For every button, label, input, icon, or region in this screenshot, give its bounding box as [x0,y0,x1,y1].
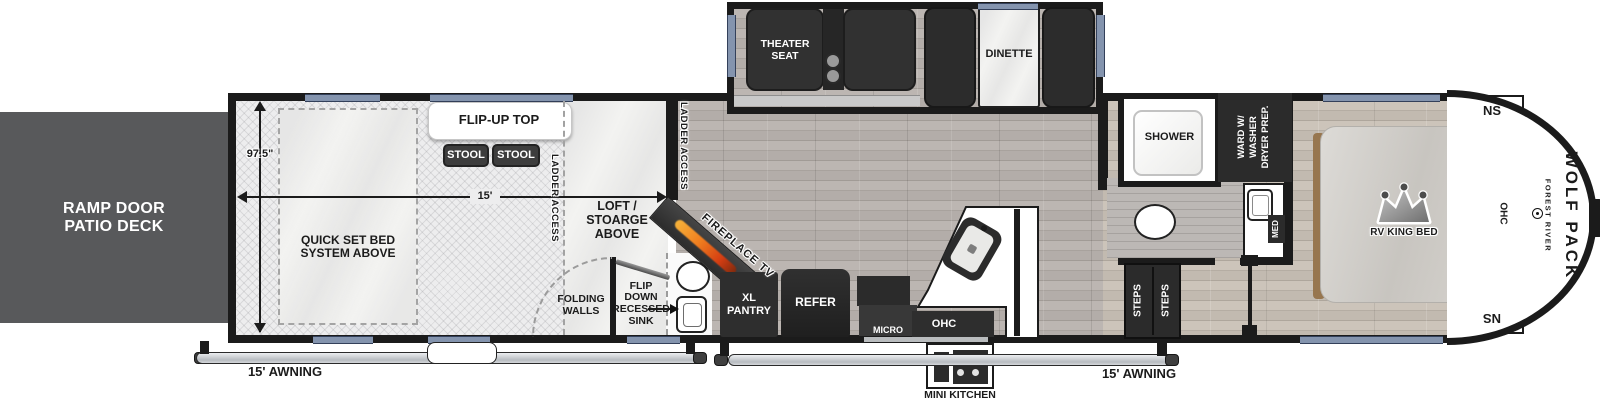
shower-label: SHOWER [1120,130,1219,145]
ladder-access-garage-label: LADDER ACCESS [546,153,562,243]
ns-top-label: NS [1460,95,1524,128]
left-wall [228,93,236,343]
window-bedroom-bottom [1300,336,1443,344]
awning-bracket-4 [1157,341,1167,356]
awning-left-label: 15' AWNING [225,365,345,380]
dinette-bench-left [924,7,976,108]
window-bedroom-top [1323,94,1440,102]
length-dim-label: 15' [470,189,500,204]
quick-set-bed-label: QUICK SET BED SYSTEM ABOVE [283,230,413,264]
bath-sink-basin [1252,195,1269,216]
refer-label: REFER [781,269,850,337]
window-slideout-top [978,3,1038,10]
exterior-tray [427,342,497,364]
window-slideout-right [1096,15,1105,77]
quick-set-bed-area [278,108,418,325]
window-garage-bottom-1 [313,336,373,344]
length-dim-line [240,196,664,198]
mini-kitchen-label: MINI KITCHEN [915,389,1005,402]
med-label: MED [1270,215,1282,243]
nook-sink-basin [683,303,702,327]
ladder-access-living-label: LADDER ACCESS [675,101,691,191]
grill-knob [957,369,964,376]
ohc-kitchen-label: OHC [912,311,976,337]
range-cooktop [857,276,910,306]
micro-label: MICRO [859,324,917,336]
awning-bracket-1 [200,341,209,354]
ramp-door-patio-deck: RAMP DOOR PATIO DECK [0,112,228,323]
height-dim-label: 97.5" [236,147,284,161]
steps-label-2: STEPS [1160,276,1173,326]
steps-divider [1152,267,1154,335]
ramp-deck-label: RAMP DOOR PATIO DECK [63,200,165,236]
window-garage-top-1 [305,94,380,102]
toilet [1134,204,1176,240]
window-slideout-left [727,15,736,77]
kitchen-counter-edge-trim [864,337,988,342]
floorplan-canvas: RAMP DOOR PATIO DECK [0,0,1600,402]
brand-wolf-pack: WOLF PACK [1559,126,1583,306]
bath-left-wall [1098,100,1108,190]
awning-right-label: 15' AWNING [1078,367,1200,382]
bath-floor [1107,178,1245,258]
flip-up-top-label: FLIP-UP TOP [428,102,570,138]
theater-seat-right [843,8,916,91]
window-garage-bottom-3 [627,336,680,344]
bedroom-door-leaf [1248,259,1252,331]
ns-bottom-label: NS [1460,301,1524,334]
awning-left-cap-r [693,352,707,364]
awning-bar-right [728,354,1178,366]
window-garage-top-2 [430,94,573,102]
dinette-label: DINETTE [978,45,1040,63]
crown-icon [1372,182,1436,228]
awning-right-cap-r [1165,354,1179,366]
nook-recessed-sink [676,296,707,333]
theater-seat-console [823,9,844,90]
grill-knob [972,369,979,376]
slideout-step-ledge [734,95,920,106]
stool-1-label: STOOL [443,144,489,167]
rv-king-bed-label: RV KING BED [1366,225,1442,240]
theater-seat-label: THEATER SEAT [750,35,820,67]
xl-pantry-label: XL PANTRY [720,272,778,337]
ward-label: WARD W/ WASHER DRYER PREP. [1234,94,1274,180]
awning-bracket-3 [720,341,729,356]
awning-bracket-2 [686,341,695,354]
height-dim-arrow-down [254,323,266,333]
height-dim-arrow-up [254,101,266,111]
brand-forest-river: FOREST RIVER [1541,161,1554,271]
folding-walls-label: FOLDING WALLS [554,291,608,321]
bed-ohc-label: OHC [1497,194,1510,234]
mini-kitchen-box [926,343,994,389]
dinette-bench-right [1042,7,1095,108]
stool-2-label: STOOL [492,144,540,167]
bedroom-door-cap-bottom [1242,325,1257,338]
flip-down-sink-label: FLIP DOWN RECESSED SINK [610,276,672,332]
hitch-pin-box [1589,199,1600,237]
height-dim-line [259,104,261,332]
length-dim-arrow-left [237,191,247,203]
steps-label-1: STEPS [1132,276,1145,326]
loft-storage-label: LOFT / STOARGE ABOVE [566,203,668,237]
